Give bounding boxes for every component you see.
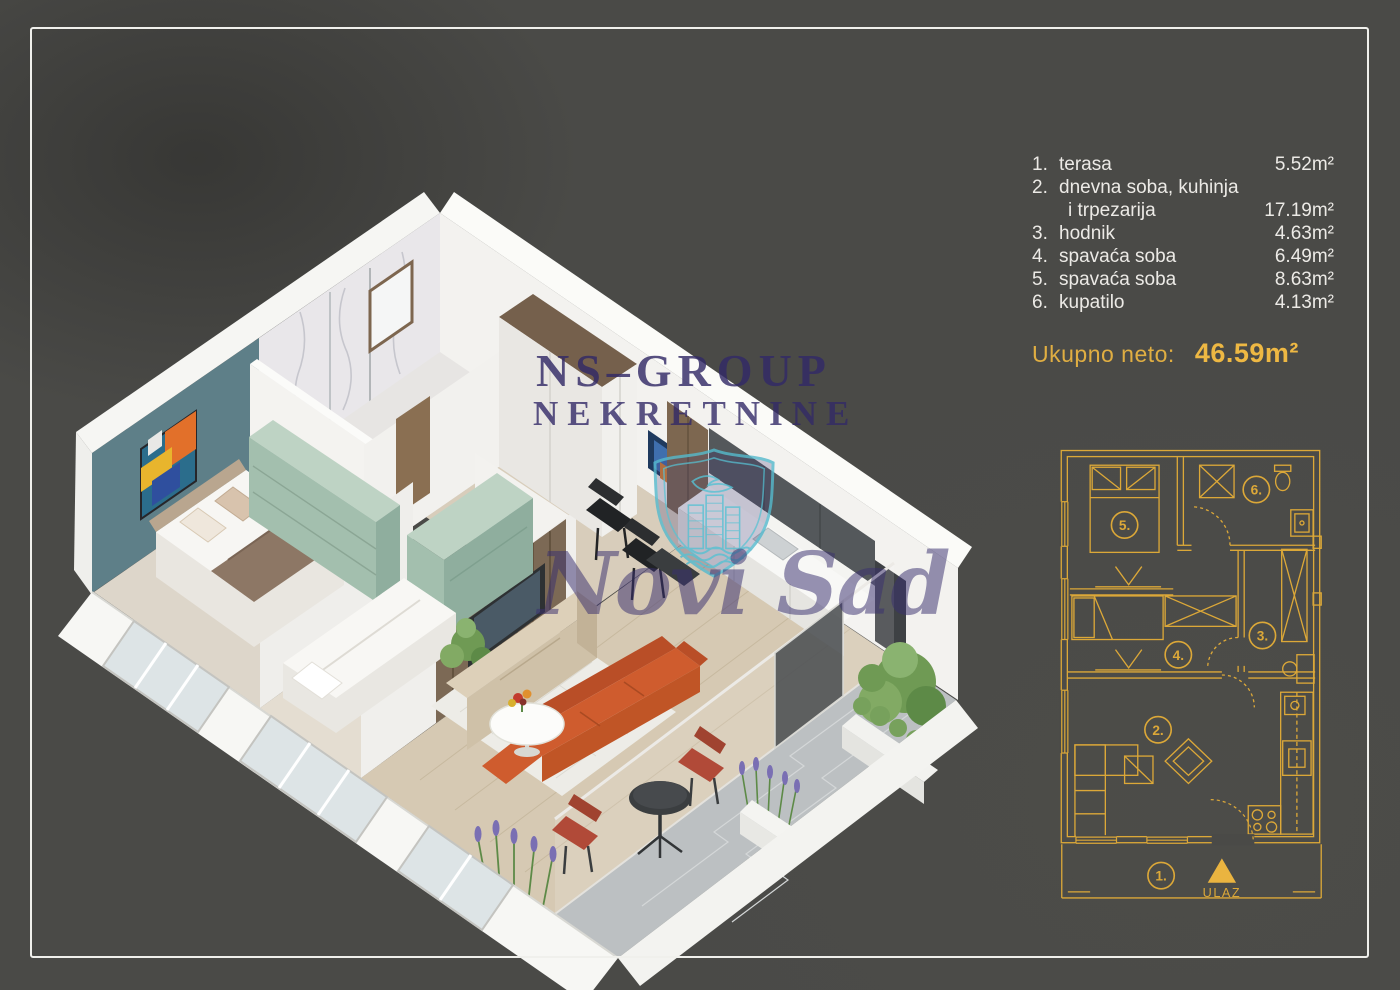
plan-hall-door-arc [1208,638,1238,668]
plan-label-room6: 6. [1251,483,1262,498]
plan-living-door-arc [1222,675,1254,707]
plan-shower [1200,465,1234,497]
plan-bath-door-arc [1191,507,1230,546]
room-number: 2. [1032,176,1059,199]
plan-desk-chair [1283,655,1314,683]
room-row-3: 3. hodnik 4.63m² [1032,222,1334,245]
plan-inner-wall [1067,457,1313,837]
entrance-label: ULAZ [1203,886,1241,900]
listing-poster: NS–GROUP NEKRETNINE Novi Sad 1. terasa 5… [0,0,1400,990]
room-row-2: 2. dnevna soba, kuhinja i trpezarija 17.… [1032,176,1334,222]
watermark-brand: NS–GROUP [536,344,832,397]
plan-sofa [1075,745,1138,836]
room-number: 1. [1032,153,1059,176]
plan-label-room1: 1. [1155,869,1166,884]
room-area: 17.19m² [1254,199,1334,222]
plan-wardrobe4 [1165,596,1236,626]
room-name: kupatilo [1059,291,1254,314]
room-name: dnevna soba, kuhinja i trpezarija [1059,176,1254,222]
room-number: 3. [1032,222,1059,245]
plan-tv-mark-living [1095,650,1161,670]
room-name: terasa [1059,153,1254,176]
total-value: 46.59m² [1195,338,1299,369]
total-label: Ukupno neto: [1032,341,1175,368]
watermark-subtitle: NEKRETNINE [533,394,858,434]
room-row-5: 5. spavaća soba 8.63m² [1032,268,1334,291]
room-name: hodnik [1059,222,1254,245]
plan-bed5 [1090,465,1159,552]
plan-wall-hall [1238,550,1244,672]
plan-label-room5: 5. [1119,518,1130,533]
plan-wall-bed4 [1068,672,1315,678]
plan-windows [1060,502,1255,846]
entrance-arrow-icon [1208,858,1236,882]
room-number: 4. [1032,245,1059,268]
plan-side-table [1125,756,1153,783]
room-number: 5. [1032,268,1059,291]
room-name-line2: i trpezarija [1059,199,1254,222]
room-name: spavaća soba [1059,268,1254,291]
plan-label-room4: 4. [1173,648,1184,663]
plan-stove [1248,806,1280,834]
plan-label-room3: 3. [1257,629,1268,644]
plan-tv-mark-bed4 [1095,567,1161,587]
plan-kitchen-counter [1281,692,1313,834]
floor-plan-2d: 1. 2. 3. 4. 5. 6. ULAZ [1050,449,1335,901]
room-area: 6.49m² [1254,245,1334,268]
watermark-city-script: Novi Sad [538,534,949,635]
plan-terrace-walls [1062,844,1321,898]
total-area-row: Ukupno neto: 46.59m² [1032,338,1334,369]
plan-hall-wardrobe [1282,549,1307,641]
outer-wall-left-corner [74,432,92,595]
plan-wall-bed5 [1068,589,1173,595]
room-area: 5.52m² [1254,153,1334,176]
room-name-line1: dnevna soba, kuhinja [1059,176,1254,199]
room-name: spavaća soba [1059,245,1254,268]
room-row-6: 6. kupatilo 4.13m² [1032,291,1334,314]
room-row-4: 4. spavaća soba 6.49m² [1032,245,1334,268]
room-area: 4.13m² [1254,291,1334,314]
room-number: 6. [1032,291,1059,314]
room-list-panel: 1. terasa 5.52m² 2. dnevna soba, kuhinja… [1032,153,1334,369]
room-area: 4.63m² [1254,222,1334,245]
room-area: 8.63m² [1254,268,1334,291]
plan-label-room2: 2. [1152,723,1163,738]
plan-sink [1291,510,1313,536]
room-row-1: 1. terasa 5.52m² [1032,153,1334,176]
plan-bed4 [1072,596,1163,640]
plan-armchair [1165,739,1212,784]
plan-toilet [1275,465,1291,490]
